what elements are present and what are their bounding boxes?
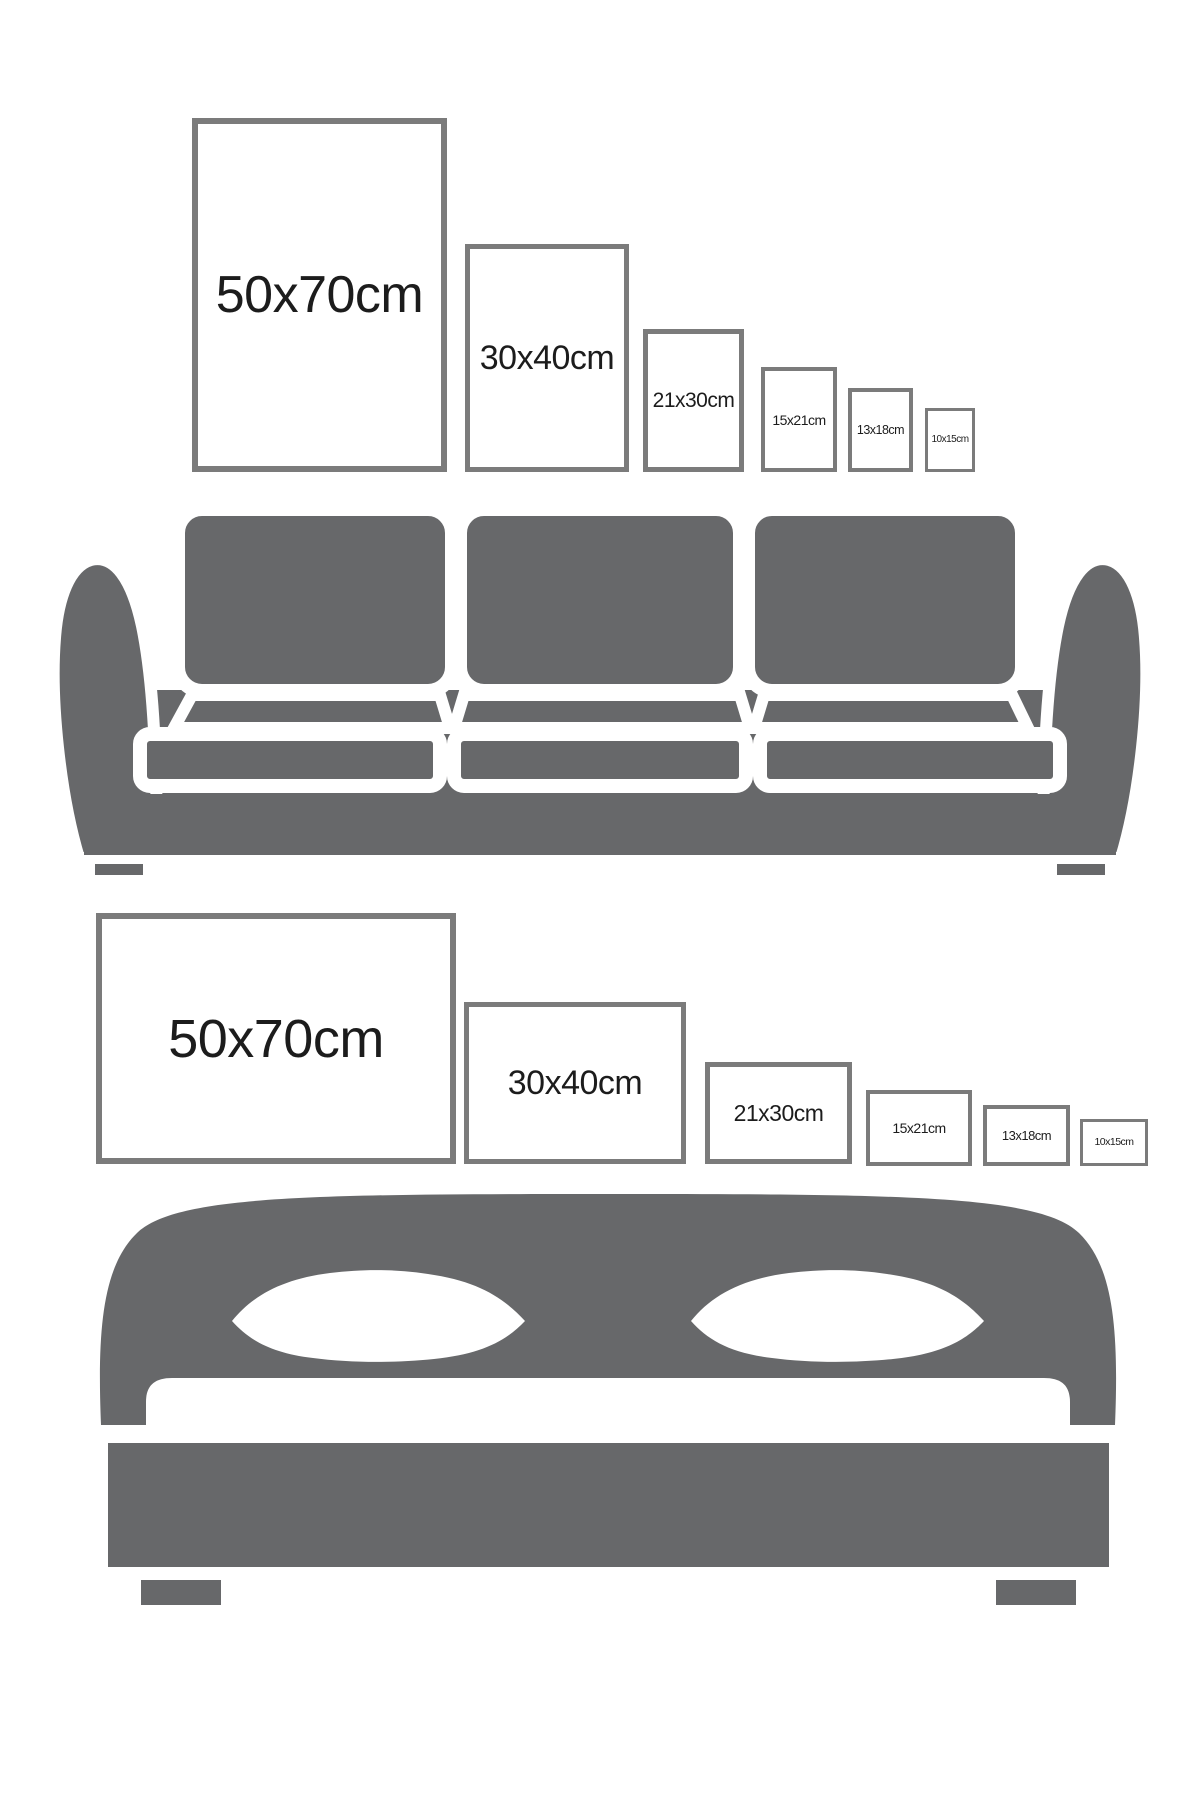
sofa-seat-cushion bbox=[454, 734, 746, 786]
size-guide-canvas: 50x70cm 30x40cm 21x30cm 15x21cm 13x18cm … bbox=[0, 0, 1200, 1800]
frame-landscape-30x40: 30x40cm bbox=[464, 1002, 686, 1164]
frame-size-label: 30x40cm bbox=[508, 1066, 642, 1100]
frame-size-label: 13x18cm bbox=[1002, 1129, 1051, 1142]
frame-size-label: 50x70cm bbox=[168, 1012, 384, 1066]
frame-size-label: 10x15cm bbox=[1094, 1137, 1133, 1148]
frame-size-label: 50x70cm bbox=[216, 269, 424, 321]
frame-size-label: 13x18cm bbox=[857, 424, 904, 437]
frame-portrait-50x70: 50x70cm bbox=[192, 118, 447, 472]
frame-size-label: 10x15cm bbox=[931, 435, 968, 445]
sofa-seat-cushion bbox=[760, 734, 1060, 786]
bed-base bbox=[108, 1443, 1109, 1567]
bed-icon bbox=[95, 1190, 1117, 1610]
frame-landscape-15x21: 15x21cm bbox=[866, 1090, 972, 1166]
frame-landscape-50x70: 50x70cm bbox=[96, 913, 456, 1164]
frame-size-label: 21x30cm bbox=[653, 390, 735, 411]
frame-portrait-13x18: 13x18cm bbox=[848, 388, 913, 472]
frame-portrait-21x30: 21x30cm bbox=[643, 329, 744, 472]
sofa-back-cushion bbox=[178, 509, 452, 691]
frame-size-label: 30x40cm bbox=[480, 341, 614, 375]
sofa-back-cushion bbox=[748, 509, 1022, 691]
frame-portrait-10x15: 10x15cm bbox=[925, 408, 975, 472]
frame-portrait-30x40: 30x40cm bbox=[465, 244, 629, 472]
frame-portrait-15x21: 15x21cm bbox=[761, 367, 837, 472]
frame-landscape-13x18: 13x18cm bbox=[983, 1105, 1070, 1166]
frame-landscape-10x15: 10x15cm bbox=[1080, 1119, 1148, 1166]
sofa-icon bbox=[40, 500, 1160, 880]
frame-landscape-21x30: 21x30cm bbox=[705, 1062, 852, 1164]
sofa-seat-top bbox=[454, 695, 750, 728]
sofa-base-front bbox=[84, 794, 1116, 855]
sofa-seat-cushion bbox=[140, 734, 440, 786]
sofa-back-cushion bbox=[460, 509, 740, 691]
bed-foot-right bbox=[996, 1580, 1076, 1605]
bed-foot-left bbox=[141, 1580, 221, 1605]
sofa-seat-top bbox=[174, 695, 450, 728]
frame-size-label: 15x21cm bbox=[772, 413, 825, 427]
frame-size-label: 15x21cm bbox=[892, 1121, 945, 1135]
frame-size-label: 21x30cm bbox=[734, 1102, 824, 1125]
sofa-seat-top bbox=[754, 695, 1028, 728]
